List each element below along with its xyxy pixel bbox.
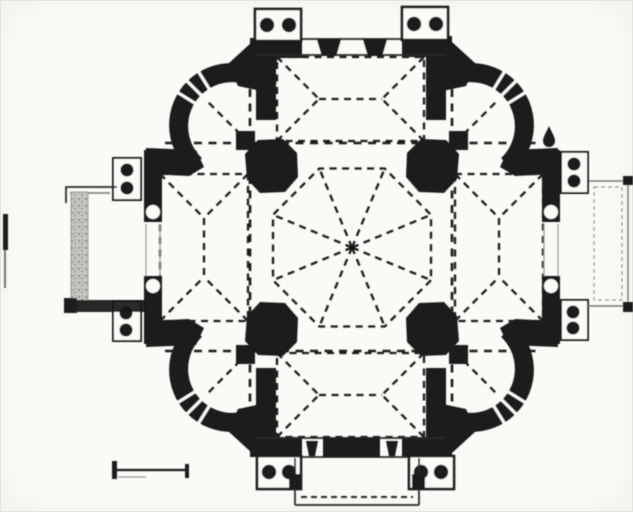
floor-plan-drawing [0, 0, 633, 512]
arm-vault-top [277, 57, 424, 141]
portico-top-right [402, 7, 448, 40]
dome-octagon [273, 169, 431, 327]
column-dot [568, 158, 581, 171]
portico-left-top [113, 158, 141, 200]
arm-side-walls [144, 42, 560, 438]
column-dot [434, 465, 448, 479]
column-dot [121, 182, 134, 195]
stray-scan-mark [3, 214, 8, 288]
arm-vault-bottom [277, 353, 424, 437]
right-outer-wall-with-niches [542, 150, 560, 344]
column-dot [567, 322, 580, 335]
left-porch [64, 187, 146, 313]
column-dot [120, 324, 133, 337]
scale-bar [112, 461, 189, 479]
column-dot [262, 465, 276, 479]
pier-southeast [406, 302, 468, 364]
column-dot [407, 17, 421, 31]
scanned-floorplan-page [0, 0, 633, 512]
hatched-wall [71, 192, 88, 302]
column-dot [121, 164, 134, 177]
column-dot [567, 306, 580, 319]
scan-border [1, 1, 633, 512]
arm-vault-right [455, 174, 543, 321]
dashed-construction-lines [160, 57, 543, 437]
portico-right-bottom [561, 300, 588, 340]
column-dot [568, 175, 581, 188]
column-dot [260, 18, 274, 32]
arm-vault-left [160, 174, 248, 321]
portico-right-top [561, 152, 588, 193]
bottom-porch [289, 458, 425, 505]
left-outer-wall-with-niches [144, 150, 162, 344]
pier-southwest [236, 302, 298, 364]
portico-top-left [255, 9, 301, 41]
floor-plan-figure [0, 0, 633, 512]
column-dot [282, 18, 296, 32]
column-dot [429, 17, 443, 31]
teardrop-column [543, 126, 555, 147]
right-porch [588, 176, 633, 312]
